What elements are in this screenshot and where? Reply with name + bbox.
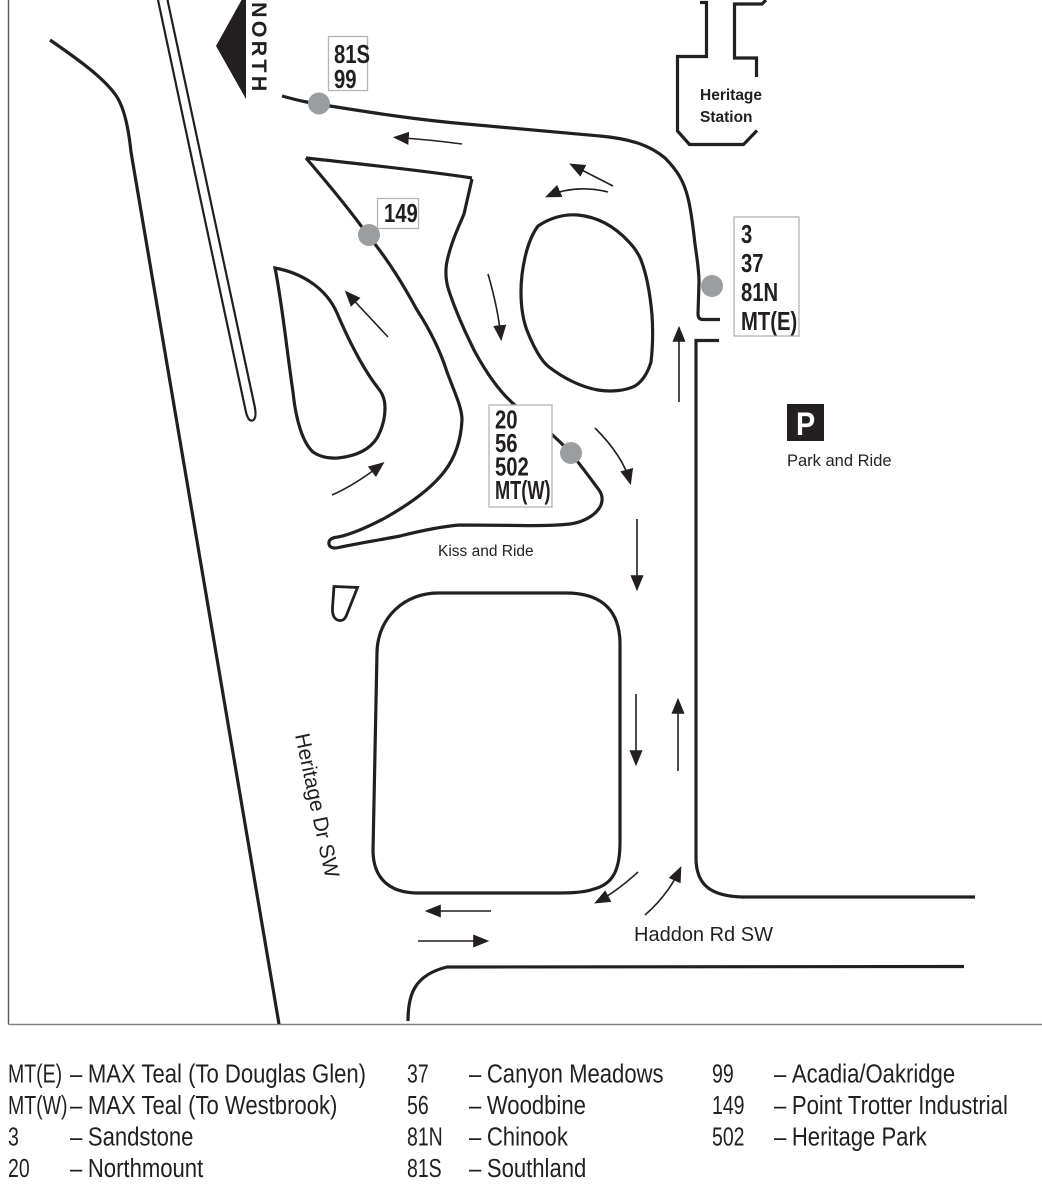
svg-text:Heritage Dr SW: Heritage Dr SW — [290, 731, 343, 880]
svg-text:81S: 81S — [407, 1153, 442, 1182]
svg-text:81N: 81N — [407, 1122, 443, 1151]
svg-text:Haddon Rd SW: Haddon Rd SW — [634, 924, 773, 946]
svg-text:Park and Ride: Park and Ride — [787, 452, 892, 470]
svg-text:–Southland: –Southland — [469, 1154, 586, 1183]
svg-text:149: 149 — [712, 1090, 745, 1119]
svg-text:–MAX Teal (To Douglas Glen): –MAX Teal (To Douglas Glen) — [70, 1060, 366, 1089]
svg-text:–Point Trotter Industrial: –Point Trotter Industrial — [774, 1091, 1008, 1120]
svg-text:P: P — [796, 407, 815, 443]
svg-text:Station: Station — [700, 109, 753, 126]
svg-text:MT(W): MT(W) — [495, 476, 551, 505]
svg-text:99: 99 — [334, 65, 357, 94]
svg-text:3: 3 — [741, 220, 752, 249]
svg-text:99: 99 — [712, 1059, 734, 1088]
svg-text:–Woodbine: –Woodbine — [469, 1091, 586, 1120]
svg-text:502: 502 — [712, 1122, 745, 1151]
svg-text:56: 56 — [407, 1090, 429, 1119]
svg-text:3: 3 — [8, 1122, 19, 1151]
svg-text:–Chinook: –Chinook — [469, 1123, 569, 1152]
svg-text:81N: 81N — [741, 278, 778, 307]
svg-text:–Canyon Meadows: –Canyon Meadows — [469, 1060, 664, 1089]
svg-text:MT(E): MT(E) — [741, 307, 797, 336]
svg-text:149: 149 — [384, 199, 418, 228]
svg-text:37: 37 — [407, 1059, 429, 1088]
svg-text:MT(E): MT(E) — [8, 1059, 62, 1088]
svg-text:37: 37 — [741, 249, 764, 278]
svg-text:Kiss and Ride: Kiss and Ride — [438, 543, 534, 560]
svg-text:–Northmount: –Northmount — [70, 1154, 203, 1183]
svg-text:–Sandstone: –Sandstone — [70, 1123, 193, 1152]
svg-text:–Acadia/Oakridge: –Acadia/Oakridge — [774, 1060, 955, 1089]
svg-text:Heritage: Heritage — [700, 87, 762, 104]
svg-text:MT(W): MT(W) — [8, 1090, 68, 1119]
svg-text:–Heritage Park: –Heritage Park — [774, 1123, 928, 1152]
svg-text:20: 20 — [8, 1153, 30, 1182]
svg-text:NORTH: NORTH — [247, 2, 271, 94]
svg-text:–MAX Teal (To Westbrook): –MAX Teal (To Westbrook) — [70, 1091, 337, 1120]
